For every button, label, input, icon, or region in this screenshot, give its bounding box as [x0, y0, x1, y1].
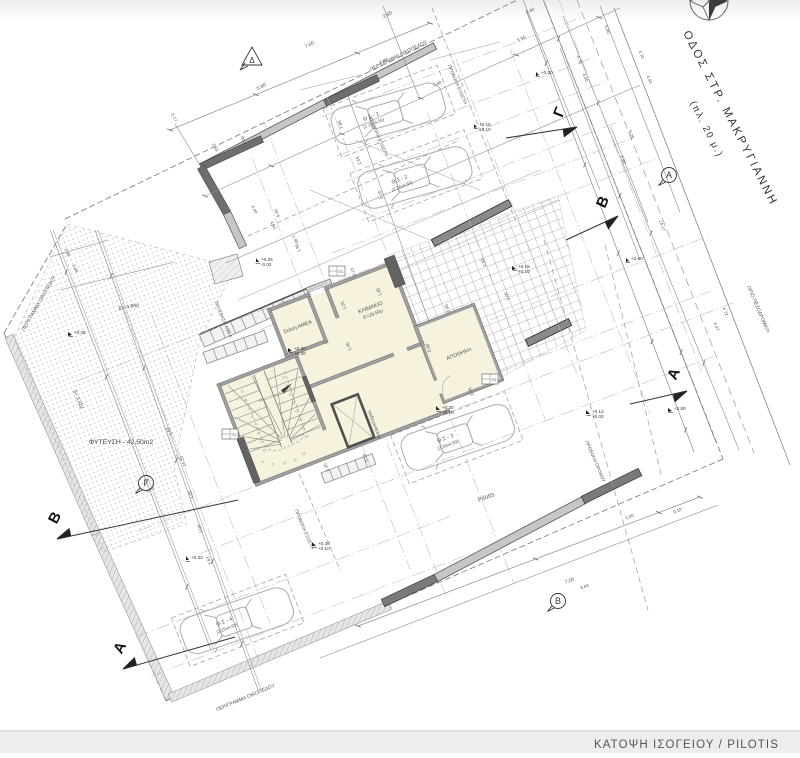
- svg-text:+0.02: +0.02: [592, 414, 604, 419]
- svg-text:+0.20: +0.20: [294, 351, 306, 356]
- svg-text:Γ: Γ: [144, 478, 149, 488]
- svg-text:+0.10: +0.10: [442, 410, 454, 415]
- svg-text:-0.02: -0.02: [261, 262, 272, 267]
- svg-text:+2.80: +2.80: [674, 406, 686, 411]
- svg-text:Π1: Π1: [491, 377, 497, 382]
- svg-text:+0.35: +0.35: [74, 330, 86, 335]
- svg-text:ΚΑΤΟΨΗ ΙΣΟΓΕΙΟΥ / PILOTIS: ΚΑΤΟΨΗ ΙΣΟΓΕΙΟΥ / PILOTIS: [594, 739, 779, 751]
- svg-text:+0.33: +0.33: [191, 555, 203, 560]
- svg-text:+0.10: +0.10: [318, 546, 330, 551]
- svg-text:Π1: Π1: [338, 269, 344, 274]
- svg-text:+0.10: +0.10: [479, 127, 491, 132]
- svg-text:Δ: Δ: [249, 56, 255, 65]
- svg-text:Α: Α: [666, 170, 672, 180]
- svg-text:+2.60: +2.60: [631, 256, 643, 261]
- svg-text:+0.00: +0.00: [541, 70, 553, 75]
- svg-text:+0.10: +0.10: [518, 269, 530, 274]
- svg-text:Π1: Π1: [231, 432, 237, 437]
- svg-text:Β: Β: [555, 596, 561, 606]
- svg-text:ΦΥΤΕΥΣΗ - 42,50m2: ΦΥΤΕΥΣΗ - 42,50m2: [89, 439, 154, 446]
